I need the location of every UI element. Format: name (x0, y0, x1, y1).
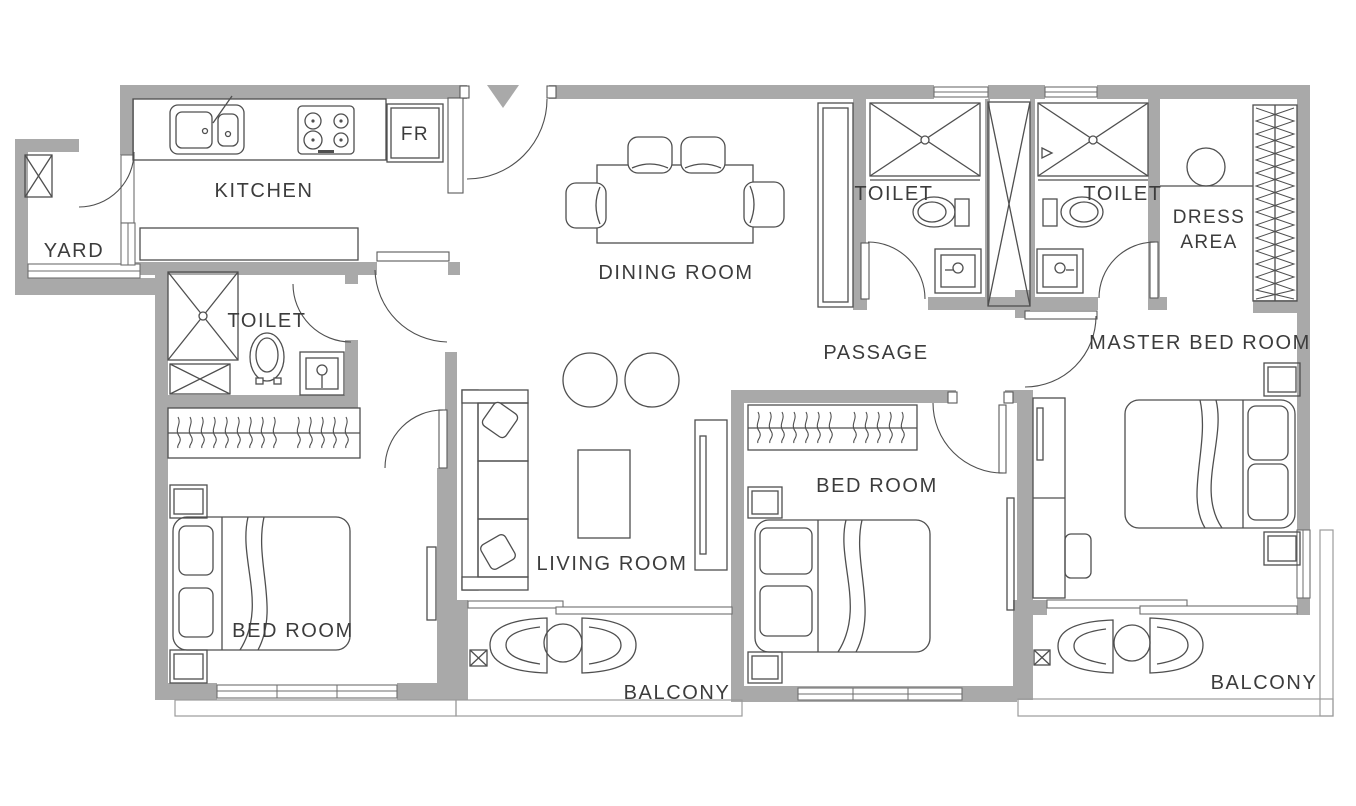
toilet2-label: TOILET (854, 183, 933, 205)
kitchen-room: FR KITCHEN (133, 96, 443, 260)
shower-icon (1038, 103, 1148, 180)
living-label: LIVING ROOM (537, 553, 688, 575)
stove-icon (298, 106, 354, 154)
passage-label: PASSAGE (823, 342, 928, 364)
balcony2-label: BALCONY (1211, 672, 1318, 694)
balcony1-label: BALCONY (624, 682, 731, 704)
tv-unit-icon (695, 420, 727, 570)
floor-plan-drawing: FR KITCHEN YARD TOILET (0, 0, 1356, 806)
floor-plan: FR KITCHEN YARD TOILET (0, 0, 1356, 806)
nightstand-icon (170, 485, 207, 518)
bedroom1-label: BED ROOM (232, 620, 354, 642)
washer-icon (170, 364, 230, 394)
wardrobe-icon (748, 405, 917, 450)
pillow-icon (479, 533, 517, 571)
coffee-table (578, 450, 630, 538)
kitchen-peninsula (140, 228, 358, 260)
balcony2: BALCONY (1058, 618, 1317, 694)
balcony1: BALCONY (490, 618, 730, 704)
nightstand-icon (1264, 532, 1300, 565)
nightstand-inner (174, 654, 203, 679)
toilet1-label: TOILET (227, 310, 306, 332)
chair-icon (566, 183, 606, 228)
bedroom1: BED ROOM (168, 408, 436, 683)
dining-room: DINING ROOM (566, 103, 853, 307)
nightstand-icon (1264, 363, 1300, 396)
nightstand-inner (752, 656, 778, 679)
shower-icon (870, 103, 980, 180)
master-bedroom: MASTER BED ROOM (1033, 332, 1311, 598)
entry-arrow-icon (487, 85, 519, 108)
master-door-icon (1025, 316, 1096, 387)
sofa-icon (462, 390, 528, 590)
washbasin-icon (300, 352, 344, 395)
storage-cabinet-inner (823, 108, 848, 302)
living-room: LIVING ROOM (462, 353, 727, 590)
corridor-door-icon (375, 270, 447, 342)
nightstand-icon (170, 650, 207, 683)
dining-label: DINING ROOM (598, 262, 753, 284)
bedroom2-door-icon (933, 403, 1003, 473)
outdoor-chair-icon (1150, 618, 1203, 673)
bedroom1-door-icon (385, 410, 443, 468)
entry-door-icon (467, 99, 547, 179)
chair-icon (744, 182, 784, 227)
bed-icon (1125, 400, 1295, 528)
wardrobe-icon (168, 408, 360, 458)
kitchen-label: KITCHEN (215, 180, 314, 202)
dress-label-line1: DRESS (1173, 207, 1245, 228)
pouf-icon (563, 353, 617, 407)
toilet2-room: TOILET (854, 103, 981, 293)
washbasin-icon (935, 249, 981, 293)
outdoor-chair-icon (582, 618, 636, 673)
fridge-label: FR (401, 124, 429, 145)
outdoor-chair-icon (1058, 620, 1113, 673)
pouf-icon (625, 353, 679, 407)
outdoor-chair-icon (490, 618, 547, 673)
outdoor-table-icon (544, 624, 582, 662)
toilet3-label: TOILET (1083, 183, 1162, 205)
tv-panel-icon (427, 547, 436, 620)
master-label: MASTER BED ROOM (1089, 332, 1311, 354)
nightstand-icon (748, 652, 782, 683)
nightstand-inner (174, 489, 203, 514)
sliding-door-icon (556, 607, 732, 614)
nightstand-inner (1268, 536, 1296, 561)
sliding-door-icon (468, 601, 563, 608)
toilet3-room: TOILET (1037, 103, 1163, 293)
pillow-icon (481, 401, 520, 440)
chair-icon (1065, 534, 1091, 578)
wc-icon (250, 333, 284, 384)
fridge-icon: FR (387, 104, 443, 162)
stool-icon (1187, 148, 1225, 186)
dress-area: DRESS AREA (1160, 105, 1297, 301)
nightstand-inner (752, 491, 778, 514)
dresser-icon (1033, 398, 1091, 598)
toilet3-door-icon (1099, 242, 1155, 298)
dress-label-line2: AREA (1180, 232, 1237, 253)
dining-table (597, 165, 753, 243)
wardrobe-shelves-icon (1253, 105, 1297, 301)
outdoor-table-icon (1114, 625, 1150, 661)
washbasin-icon (1037, 249, 1083, 293)
bedroom2: BED ROOM (748, 405, 1014, 683)
yard-label: YARD (44, 240, 104, 262)
toilet1-room: TOILET (168, 272, 344, 395)
sliding-door-icon (1140, 606, 1297, 614)
bedroom2-label: BED ROOM (816, 475, 938, 497)
tv-panel-icon (1007, 498, 1014, 610)
toilet2-door-icon (868, 242, 925, 299)
bed-icon (755, 520, 930, 652)
sink-icon (170, 96, 244, 154)
wall-pilaster (448, 98, 463, 193)
nightstand-inner (1268, 367, 1296, 392)
